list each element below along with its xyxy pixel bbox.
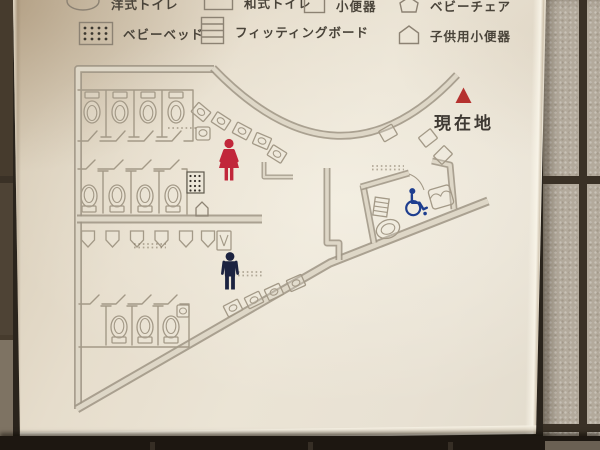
sign-panel: 洋式トイレ 和式トイレ 小便器 ベビーチェア bbox=[0, 0, 600, 450]
mens-stall-row bbox=[79, 295, 189, 347]
current-location-label: 現在地 bbox=[434, 109, 514, 134]
tile-grout bbox=[579, 0, 587, 450]
panel-edge-left bbox=[13, 0, 21, 444]
wall-tiles-right bbox=[543, 0, 600, 450]
mens-washbasins bbox=[223, 274, 306, 317]
women-symbol bbox=[219, 139, 239, 181]
wheelchair-symbol bbox=[403, 186, 427, 217]
men-symbol bbox=[222, 252, 237, 289]
tile-corner bbox=[545, 441, 600, 450]
womens-stall-row-bottom bbox=[78, 160, 187, 214]
floor-plan-map bbox=[0, 0, 600, 450]
current-location-marker bbox=[456, 88, 472, 104]
child-urinal-marker bbox=[196, 202, 208, 216]
tile-grout bbox=[543, 424, 600, 432]
wall-tiles-left bbox=[0, 0, 13, 450]
baby-bed-marker bbox=[187, 172, 204, 193]
child-urinal-fixture bbox=[217, 231, 231, 250]
wall-tiles-bottom bbox=[0, 436, 600, 450]
womens-stall-row-top bbox=[78, 90, 210, 141]
photo-restroom-map-sign: 洋式トイレ 和式トイレ 小便器 ベビーチェア bbox=[0, 0, 600, 450]
tile-grout bbox=[543, 176, 600, 184]
